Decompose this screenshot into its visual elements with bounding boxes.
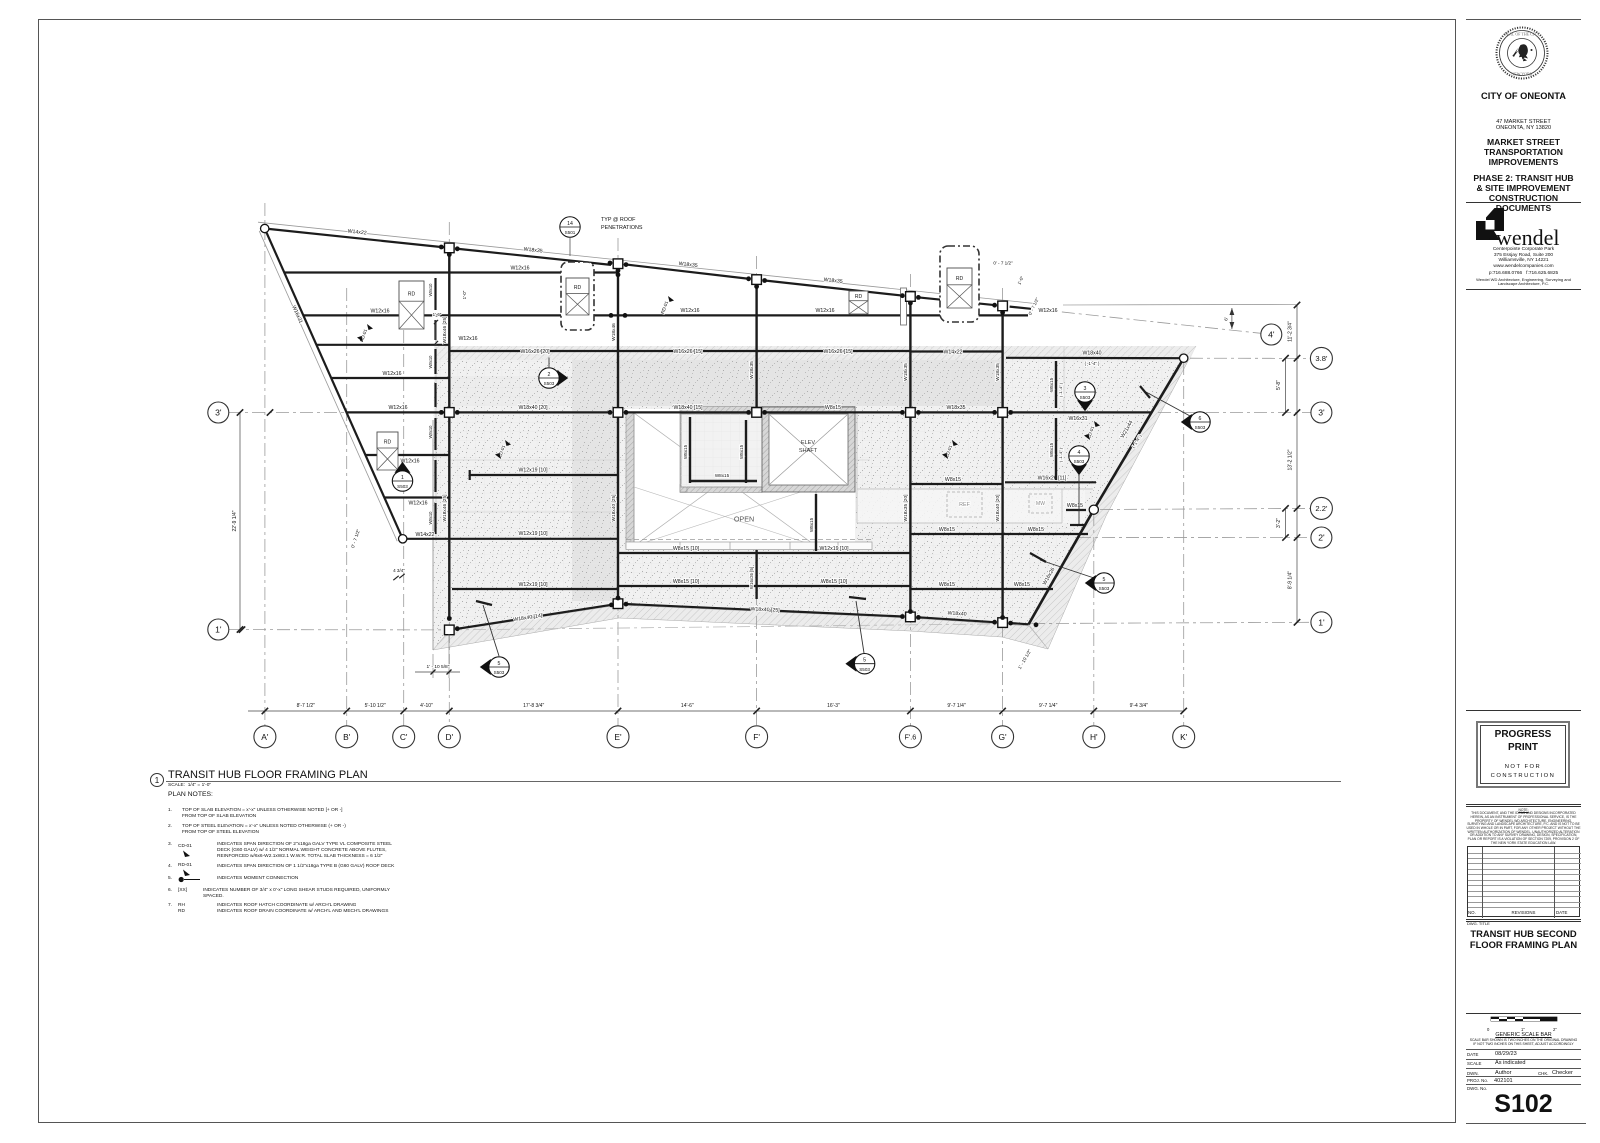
svg-text:wendel: wendel [1496,225,1560,248]
svg-text:NEW YORK: NEW YORK [1511,72,1532,77]
svg-text:SEAL OF THE CITY: SEAL OF THE CITY [1504,32,1539,37]
